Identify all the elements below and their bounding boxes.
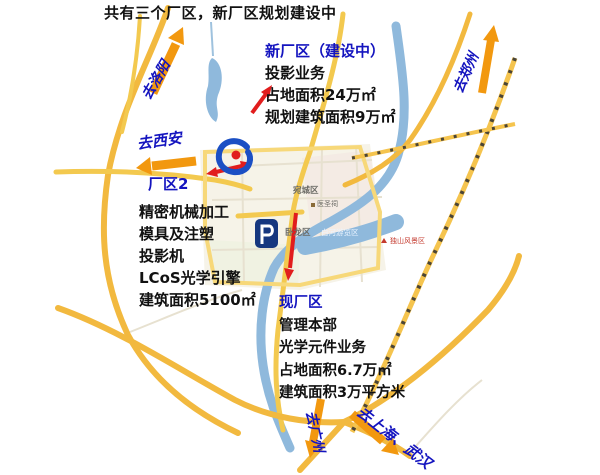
current-plant-line: 管理本部 <box>279 315 405 338</box>
factory-map-infographic: 共有三个厂区，新厂区规划建设中 新厂区（建设中） 投影业务 占地面积24万㎡ 规… <box>0 0 600 475</box>
plant2-line: 模具及注塑 <box>139 223 256 245</box>
current-plant-line: 光学元件业务 <box>279 337 405 360</box>
district-label-wancheng: 宛城区 <box>293 184 319 196</box>
current-plant-title: 现厂区 <box>279 292 405 315</box>
poi-dot <box>311 203 315 207</box>
new-plant-line: 占地面积24万㎡ <box>265 84 395 106</box>
poi-label-dushan: 独山风景区 <box>390 236 425 246</box>
new-plant-title: 新厂区（建设中） <box>265 40 395 62</box>
reservoir <box>206 58 222 122</box>
current-plant-annotation: 现厂区 管理本部 光学元件业务 占地面积6.7万㎡ 建筑面积3万平方米 <box>279 292 405 405</box>
poi-label-yishengci: 医圣祠 <box>317 199 338 209</box>
plant2-annotation: 精密机械加工 模具及注塑 投影机 LCoS光学引擎 建筑面积5100㎡ <box>139 201 256 311</box>
current-plant-line: 建筑面积3万平方米 <box>279 382 405 405</box>
plant2-line: 精密机械加工 <box>139 201 256 223</box>
new-plant-line: 规划建筑面积9万㎡ <box>265 106 395 128</box>
new-plant-annotation: 新厂区（建设中） 投影业务 占地面积24万㎡ 规划建筑面积9万㎡ <box>265 40 395 128</box>
company-p-badge-icon <box>255 219 278 248</box>
current-plant-line: 占地面积6.7万㎡ <box>279 360 405 383</box>
river-label: 白河游览区 <box>321 227 359 238</box>
plant2-line: 建筑面积5100㎡ <box>139 289 256 311</box>
plant2-line: LCoS光学引擎 <box>139 267 256 289</box>
page-title: 共有三个厂区，新厂区规划建设中 <box>104 2 337 23</box>
arrow-to-zhengzhou <box>482 25 499 93</box>
plant2-line: 投影机 <box>139 245 256 267</box>
district-label-wolong: 卧龙区 <box>285 226 311 238</box>
new-plant-line: 投影业务 <box>265 62 395 84</box>
plant2-title: 厂区2 <box>148 173 188 194</box>
